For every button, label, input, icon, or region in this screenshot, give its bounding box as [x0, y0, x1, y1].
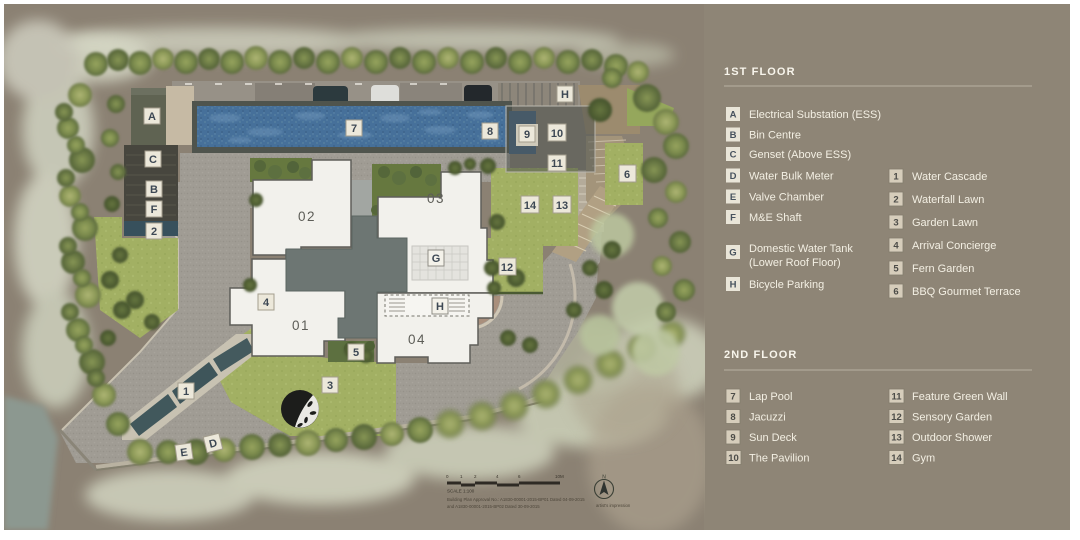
- svg-text:3: 3: [893, 218, 898, 229]
- svg-text:Gym: Gym: [912, 453, 935, 465]
- svg-text:SCALE 1:100: SCALE 1:100: [447, 489, 475, 494]
- svg-text:11: 11: [891, 392, 902, 403]
- svg-text:Water Cascade: Water Cascade: [912, 171, 987, 183]
- svg-text:F: F: [151, 204, 158, 216]
- svg-text:BBQ Gourmet Terrace: BBQ Gourmet Terrace: [912, 286, 1021, 298]
- svg-text:5: 5: [893, 264, 899, 275]
- svg-text:Building Plan Approval No.: A1: Building Plan Approval No.: A1830-00001-…: [447, 497, 585, 502]
- svg-text:C: C: [149, 154, 157, 166]
- svg-text:2: 2: [893, 195, 898, 206]
- svg-text:Outdoor Shower: Outdoor Shower: [912, 432, 992, 444]
- svg-text:Feature Green Wall: Feature Green Wall: [912, 391, 1008, 403]
- svg-text:10M: 10M: [555, 474, 564, 479]
- svg-text:E: E: [730, 192, 736, 203]
- svg-text:H: H: [436, 301, 444, 313]
- svg-text:A: A: [730, 110, 737, 121]
- svg-text:6: 6: [893, 287, 898, 298]
- svg-text:7: 7: [730, 392, 735, 403]
- svg-text:Water Bulk Meter: Water Bulk Meter: [749, 171, 834, 183]
- svg-text:7: 7: [351, 123, 357, 135]
- svg-text:10: 10: [551, 128, 563, 140]
- svg-text:H: H: [561, 89, 569, 101]
- svg-text:Sun Deck: Sun Deck: [749, 432, 797, 444]
- svg-text:Sensory Garden: Sensory Garden: [912, 412, 992, 424]
- svg-text:B: B: [150, 184, 158, 196]
- svg-text:N: N: [602, 475, 606, 481]
- svg-text:2ND FLOOR: 2ND FLOOR: [724, 349, 797, 361]
- svg-text:01: 01: [292, 318, 310, 333]
- svg-text:C: C: [730, 150, 737, 161]
- svg-text:1: 1: [893, 172, 899, 183]
- svg-text:Valve Chamber: Valve Chamber: [749, 192, 824, 204]
- svg-text:1: 1: [183, 386, 189, 398]
- svg-text:9: 9: [524, 129, 530, 141]
- svg-text:The Pavilion: The Pavilion: [749, 453, 810, 465]
- svg-text:12: 12: [501, 262, 513, 274]
- svg-text:8: 8: [487, 126, 493, 138]
- svg-text:13: 13: [891, 433, 902, 444]
- svg-text:Bin Centre: Bin Centre: [749, 130, 801, 142]
- svg-text:F: F: [730, 213, 736, 224]
- svg-text:14: 14: [891, 453, 902, 464]
- svg-text:Garden Lawn: Garden Lawn: [912, 217, 978, 229]
- svg-text:04: 04: [408, 332, 426, 347]
- svg-text:A: A: [148, 111, 156, 123]
- svg-text:Domestic Water Tank: Domestic Water Tank: [749, 243, 853, 255]
- svg-text:10: 10: [728, 453, 739, 464]
- svg-text:and A1830-00001-2015-BP02 Date: and A1830-00001-2015-BP02 Dated 30-09-20…: [447, 504, 540, 509]
- svg-text:3: 3: [327, 380, 333, 392]
- svg-text:2: 2: [151, 226, 157, 238]
- svg-text:02: 02: [298, 209, 316, 224]
- svg-text:H: H: [730, 280, 737, 291]
- svg-text:Electrical Substation (ESS): Electrical Substation (ESS): [749, 109, 881, 121]
- svg-text:12: 12: [891, 412, 902, 423]
- svg-text:4: 4: [893, 241, 899, 252]
- svg-text:Genset (Above ESS): Genset (Above ESS): [749, 149, 851, 161]
- svg-text:Lap Pool: Lap Pool: [749, 391, 792, 403]
- svg-text:Waterfall Lawn: Waterfall Lawn: [912, 194, 984, 206]
- svg-text:D: D: [730, 171, 737, 182]
- svg-text:(Lower Roof Floor): (Lower Roof Floor): [749, 257, 841, 269]
- svg-text:M&E Shaft: M&E Shaft: [749, 212, 802, 224]
- svg-text:9: 9: [730, 433, 735, 444]
- svg-text:B: B: [730, 130, 737, 141]
- svg-text:artist's impression: artist's impression: [596, 503, 631, 508]
- svg-text:03: 03: [427, 191, 445, 206]
- svg-text:Bicycle Parking: Bicycle Parking: [749, 279, 824, 291]
- svg-text:6: 6: [624, 169, 630, 181]
- svg-text:G: G: [729, 248, 736, 259]
- svg-text:13: 13: [556, 200, 568, 212]
- svg-text:G: G: [432, 253, 441, 265]
- svg-text:Fern Garden: Fern Garden: [912, 263, 974, 275]
- svg-text:4: 4: [263, 297, 270, 309]
- svg-text:Jacuzzi: Jacuzzi: [749, 412, 786, 424]
- svg-text:5: 5: [353, 347, 359, 359]
- svg-text:Arrival Concierge: Arrival Concierge: [912, 240, 996, 252]
- svg-text:14: 14: [524, 200, 537, 212]
- svg-text:1ST FLOOR: 1ST FLOOR: [724, 66, 796, 78]
- svg-text:11: 11: [551, 158, 563, 170]
- svg-text:8: 8: [730, 412, 735, 423]
